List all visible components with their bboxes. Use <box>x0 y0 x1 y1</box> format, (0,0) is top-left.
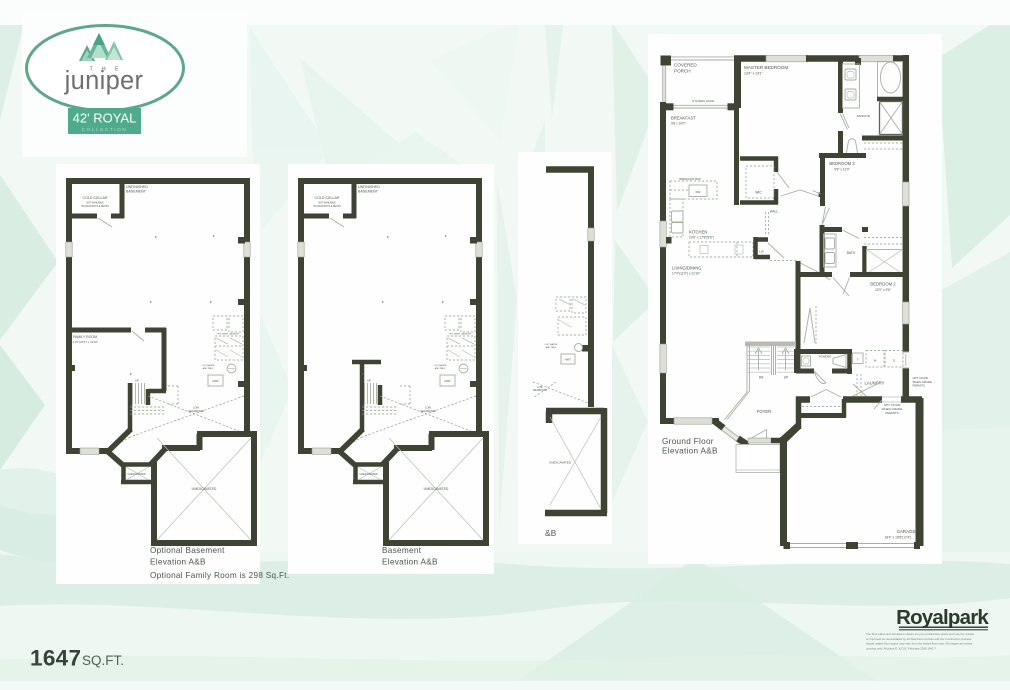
svg-text:LIVING/DINING: LIVING/DINING <box>672 265 702 270</box>
svg-text:UNFINISHED: UNFINISHED <box>126 185 148 189</box>
svg-text:LOC WATER: LOC WATER <box>545 343 558 346</box>
svg-text:COVERED: COVERED <box>674 63 697 68</box>
svg-text:BREAKFAST: BREAKFAST <box>671 115 696 120</box>
svg-text:GARAGE: GARAGE <box>897 529 916 534</box>
svg-text:12'0" x 9'6": 12'0" x 9'6" <box>875 288 891 292</box>
svg-text:&B: &B <box>545 529 557 538</box>
svg-text:8' SLIDING DOOR: 8' SLIDING DOOR <box>692 99 714 103</box>
svg-text:Ground Floor: Ground Floor <box>662 437 714 446</box>
svg-text:LOC WATER: LOC WATER <box>434 364 447 367</box>
svg-text:Basement: Basement <box>382 546 422 555</box>
svg-text:COLLECTION: COLLECTION <box>82 127 128 133</box>
svg-text:POWDER: POWDER <box>819 355 832 359</box>
svg-text:BASEMENT: BASEMENT <box>126 190 147 194</box>
svg-text:HWT: HWT <box>444 379 451 383</box>
svg-text:DN: DN <box>759 376 764 380</box>
svg-text:OPT. BSMT LAUNDRY: OPT. BSMT LAUNDRY <box>449 333 472 336</box>
svg-text:COLD CELLAR: COLD CELLAR <box>315 196 340 200</box>
svg-text:Elevation A&B: Elevation A&B <box>150 558 206 567</box>
svg-text:HWT: HWT <box>565 358 571 362</box>
svg-text:Royalpark: Royalpark <box>896 606 989 629</box>
svg-text:42' ROYAL: 42' ROYAL <box>73 111 137 126</box>
svg-text:1647: 1647 <box>30 646 81 671</box>
svg-text:Elevation A&B: Elevation A&B <box>382 558 438 567</box>
svg-text:Elevation A&B: Elevation A&B <box>662 447 718 456</box>
svg-text:or improved as necessitated by: or improved as necessitated by architect… <box>866 637 972 641</box>
svg-text:LOW: LOW <box>193 406 199 410</box>
svg-text:MASTER BEDROOM: MASTER BEDROOM <box>744 65 788 70</box>
svg-text:13'4" x 13'1": 13'4" x 13'1" <box>744 72 763 76</box>
svg-text:UP: UP <box>784 376 788 380</box>
svg-text:NOT AVAILABLE: NOT AVAILABLE <box>318 202 336 205</box>
svg-text:KITCHEN: KITCHEN <box>689 230 707 235</box>
svg-text:D: D <box>893 359 895 363</box>
svg-text:Optional Family Room is 298 Sq: Optional Family Room is 298 Sq.Ft. <box>150 571 289 580</box>
svg-text:10'6" x 17'8"(9'6"): 10'6" x 17'8"(9'6") <box>689 236 714 240</box>
svg-text:ENSUITE: ENSUITE <box>857 114 870 118</box>
svg-text:BEDROOM 2: BEDROOM 2 <box>870 282 896 287</box>
svg-text:FOYER: FOYER <box>757 409 771 414</box>
svg-text:UNEXCAVATED: UNEXCAVATED <box>549 461 572 465</box>
svg-text:AND TAPS: AND TAPS <box>546 346 557 349</box>
svg-text:OPT. BSMT LAUNDRY: OPT. BSMT LAUNDRY <box>217 333 240 336</box>
svg-text:COLD CELLAR: COLD CELLAR <box>83 196 108 200</box>
svg-text:17'0"(15'3") x 21'10": 17'0"(15'3") x 21'10" <box>73 340 98 344</box>
svg-text:W: W <box>874 359 877 363</box>
svg-text:T: T <box>857 357 859 361</box>
svg-text:The floor plans and elevations: The floor plans and elevations shown are… <box>866 632 974 636</box>
svg-text:UP: UP <box>367 379 371 383</box>
svg-text:UNFINISHED: UNFINISHED <box>358 185 380 189</box>
svg-text:9'6 x 10'0": 9'6 x 10'0" <box>671 122 686 126</box>
svg-text:PERMITS: PERMITS <box>885 411 898 415</box>
svg-text:HWT: HWT <box>212 379 219 383</box>
svg-text:BREAKFAST BAR: BREAKFAST BAR <box>679 177 700 181</box>
svg-text:UNEXCAVATED: UNEXCAVATED <box>424 487 449 491</box>
svg-text:UP: UP <box>135 379 139 383</box>
svg-text:Optional Basement: Optional Basement <box>150 546 225 555</box>
svg-text:17'4"(11'0") x 21'10": 17'4"(11'0") x 21'10" <box>672 272 700 276</box>
svg-text:HEADROOM: HEADROOM <box>420 409 435 413</box>
svg-text:9'8" x 11'0": 9'8" x 11'0" <box>834 167 849 171</box>
svg-text:BASEMENT: BASEMENT <box>358 190 379 194</box>
svg-text:Actual usable floor space may: Actual usable floor space may vary from … <box>866 642 973 646</box>
svg-text:UNEXCAVATED: UNEXCAVATED <box>192 487 217 491</box>
svg-text:DW: DW <box>696 190 701 194</box>
svg-text:PORCH: PORCH <box>674 69 691 74</box>
svg-text:concept only. All plans E. & O: concept only. All plans E. & O.E. Februa… <box>866 646 936 650</box>
svg-text:LOW: LOW <box>425 406 431 410</box>
svg-text:NOT AVAILABLE: NOT AVAILABLE <box>86 202 104 205</box>
svg-text:AND TAPS: AND TAPS <box>203 367 214 370</box>
svg-text:FAMILY ROOM: FAMILY ROOM <box>73 335 97 339</box>
svg-text:UNEXCAVATED: UNEXCAVATED <box>127 473 145 476</box>
svg-text:ON WALKOUTS & DECKS: ON WALKOUTS & DECKS <box>313 205 341 208</box>
svg-text:LOC WATER: LOC WATER <box>202 364 215 367</box>
svg-text:HALL: HALL <box>770 210 779 214</box>
svg-text:BATH: BATH <box>847 251 856 255</box>
svg-text:PERMITS: PERMITS <box>913 384 926 388</box>
svg-text:LIN: LIN <box>759 250 763 254</box>
svg-text:ON WALKOUTS & DECKS: ON WALKOUTS & DECKS <box>81 205 109 208</box>
svg-text:WIC: WIC <box>755 191 762 195</box>
svg-text:UNEXCAVATED: UNEXCAVATED <box>359 473 377 476</box>
svg-text:18'4" x 19'8"(17'4"): 18'4" x 19'8"(17'4") <box>885 536 912 540</box>
svg-text:SQ.FT.: SQ.FT. <box>82 653 124 668</box>
svg-text:BEDROOM 3: BEDROOM 3 <box>829 161 855 166</box>
svg-text:HEADROOM: HEADROOM <box>188 409 203 413</box>
svg-text:AND TAPS: AND TAPS <box>435 367 446 370</box>
svg-text:juniper: juniper <box>64 67 144 95</box>
